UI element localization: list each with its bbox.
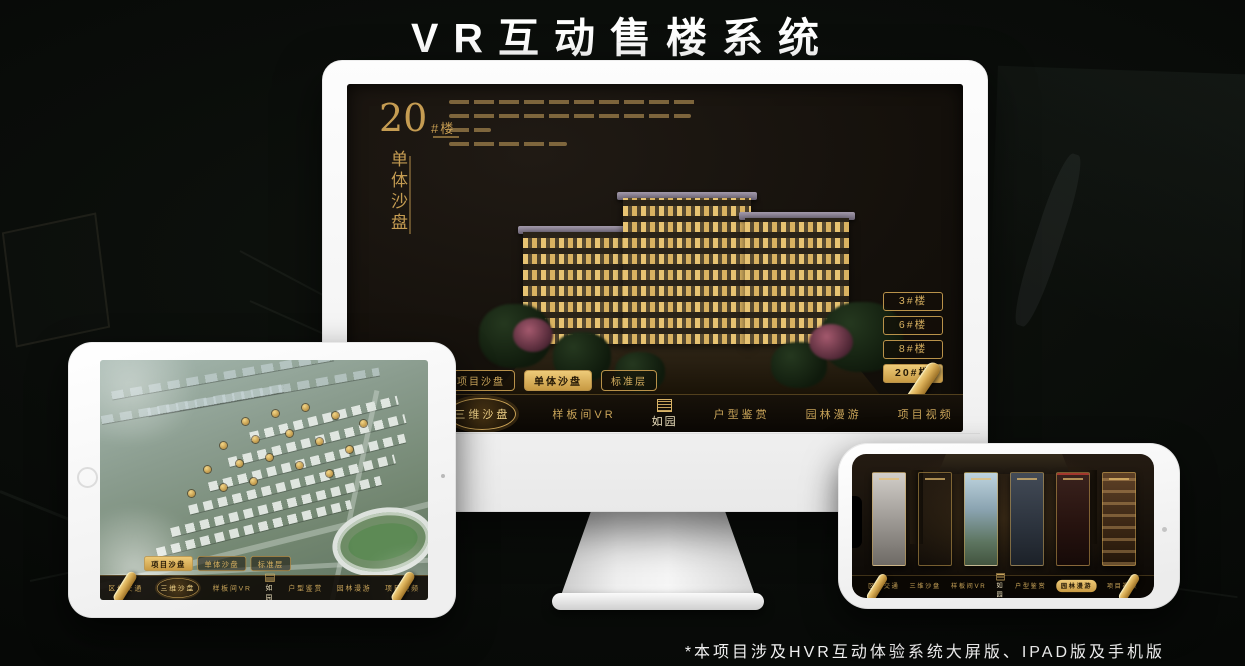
building-number-heading: 20	[379, 96, 427, 140]
paragraph-line-decor	[449, 114, 691, 118]
brand-seal-icon	[265, 574, 274, 582]
blossom-decor	[809, 324, 853, 360]
floor-button-6[interactable]: 6#楼	[883, 316, 943, 335]
nav-item-unit-gallery[interactable]: 户型鉴赏	[714, 406, 770, 422]
footnote-text: *本项目涉及HVR互动体验系统大屏版、IPAD版及手机版	[685, 638, 1165, 662]
nav-item-garden-roam[interactable]: 园林漫游	[1056, 579, 1096, 591]
tablet-bottom-nav: 区位交通 三维沙盘 样板间VR 如园 户型鉴赏 园林漫游 项目视频	[100, 575, 428, 600]
building-badge[interactable]	[360, 420, 367, 427]
building-badge[interactable]	[204, 466, 211, 473]
building-badge[interactable]	[332, 412, 339, 419]
vertical-label-rule-decor	[409, 156, 411, 234]
background-photo-decor	[986, 66, 1245, 415]
building-badge[interactable]	[188, 490, 195, 497]
building-wing-center	[623, 198, 751, 344]
blossom-decor	[513, 318, 553, 352]
monitor-stand-base	[552, 593, 764, 610]
phone-camera-dot	[1162, 527, 1167, 532]
building-badge[interactable]	[266, 454, 273, 461]
subtab-single-building[interactable]: 单体沙盘	[524, 370, 592, 391]
building-badge[interactable]	[286, 430, 293, 437]
building-badge[interactable]	[302, 404, 309, 411]
building-badge[interactable]	[326, 470, 333, 477]
building-badge[interactable]	[316, 438, 323, 445]
gallery-card-poster[interactable]	[1056, 472, 1090, 566]
phone-bottom-nav: 区位交通 三维沙盘 样板间VR 如园 户型鉴赏 园林漫游 项目视频	[852, 575, 1154, 595]
brand-logo[interactable]: 如园	[996, 573, 1004, 598]
building-badge[interactable]	[220, 442, 227, 449]
paragraph-line-decor	[449, 128, 491, 132]
gallery-card-building[interactable]	[964, 472, 998, 566]
background-plaque-decor	[2, 212, 110, 347]
nav-item-unit-gallery[interactable]: 户型鉴赏	[1015, 581, 1046, 590]
floor-button-8[interactable]: 8#楼	[883, 340, 943, 359]
nav-item-3d-sandbox[interactable]: 三维沙盘	[157, 578, 199, 598]
gallery-card-cabinet[interactable]	[1102, 472, 1136, 566]
subtab-standard-floor[interactable]: 标准层	[251, 556, 291, 571]
nav-item-unit-gallery[interactable]: 户型鉴赏	[288, 583, 323, 593]
nav-item-showroom-vr[interactable]: 样板间VR	[212, 583, 251, 593]
nav-item-3d-sandbox[interactable]: 三维沙盘	[448, 398, 516, 430]
building-badge[interactable]	[296, 462, 303, 469]
brand-logo-text: 如园	[265, 582, 274, 600]
description-paragraph	[449, 100, 699, 146]
phone-screen: 区位交通 三维沙盘 样板间VR 如园 户型鉴赏 园林漫游 项目视频	[852, 454, 1154, 598]
nav-item-project-video[interactable]: 项目视频	[898, 406, 954, 422]
building-badge[interactable]	[346, 446, 353, 453]
page-title: VR互动售楼系统	[0, 4, 1245, 64]
subtab-standard-floor[interactable]: 标准层	[601, 370, 657, 391]
section-vertical-label: 单体沙盘	[385, 150, 410, 260]
building-badge[interactable]	[242, 418, 249, 425]
building-badge[interactable]	[250, 478, 257, 485]
subtab-project-sandbox[interactable]: 项目沙盘	[144, 556, 193, 571]
building-model-illustration	[465, 144, 911, 396]
subtab-single-building[interactable]: 单体沙盘	[197, 556, 246, 571]
building-badge[interactable]	[220, 484, 227, 491]
floor-button-3[interactable]: 3#楼	[883, 292, 943, 311]
monitor-stand-neck	[556, 512, 760, 598]
nav-item-3d-sandbox[interactable]: 三维沙盘	[909, 581, 940, 590]
nav-item-garden-roam[interactable]: 园林漫游	[337, 583, 372, 593]
nav-item-showroom-vr[interactable]: 样板间VR	[552, 406, 615, 422]
gallery-card-tower[interactable]	[1010, 472, 1044, 566]
subtab-project-sandbox[interactable]: 项目沙盘	[447, 370, 515, 391]
nav-item-showroom-vr[interactable]: 样板间VR	[951, 581, 986, 590]
tablet-home-button[interactable]	[77, 467, 98, 488]
monitor-subtabs: 项目沙盘 单体沙盘 标准层	[447, 370, 657, 391]
phone-notch	[852, 496, 862, 548]
poster-canvas: VR互动售楼系统 20 #楼 单体沙盘	[0, 0, 1245, 666]
paragraph-line-decor	[449, 100, 699, 104]
building-badge[interactable]	[272, 410, 279, 417]
brand-logo-text: 如园	[996, 580, 1004, 598]
tablet-camera-dot	[441, 474, 445, 478]
brand-seal-icon	[657, 399, 672, 412]
brand-logo[interactable]: 如园	[265, 574, 274, 600]
brand-logo[interactable]: 如园	[652, 399, 678, 429]
gallery-card-interior[interactable]	[872, 472, 906, 566]
brand-logo-text: 如园	[652, 413, 678, 429]
gallery-card-kitchen[interactable]	[918, 472, 952, 566]
nav-item-garden-roam[interactable]: 园林漫游	[806, 406, 862, 422]
entrance-beam-decor	[938, 454, 1070, 474]
fog-decor	[100, 360, 210, 440]
building-badge[interactable]	[252, 436, 259, 443]
tablet-screen: 项目沙盘 单体沙盘 标准层 区位交通 三维沙盘 样板间VR 如园 户型鉴赏 园林…	[100, 360, 428, 600]
building-badge[interactable]	[236, 460, 243, 467]
brand-seal-icon	[996, 573, 1004, 580]
tablet-subtabs: 项目沙盘 单体沙盘 标准层	[144, 556, 291, 571]
